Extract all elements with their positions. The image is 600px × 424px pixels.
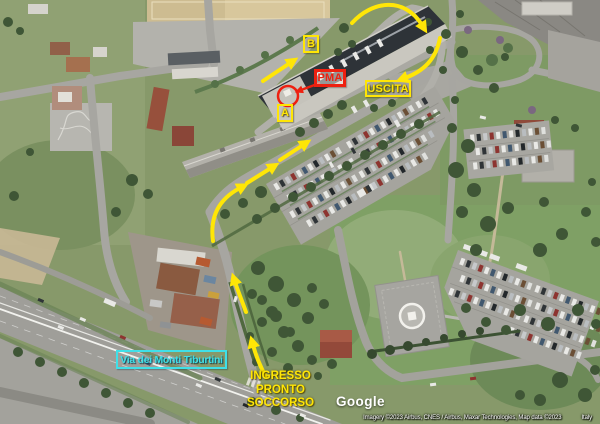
marker-a-label: A [281, 107, 289, 119]
attribution-bar: Imagery ©2023 Airbus, CNES / Airbus, Max… [0, 415, 600, 421]
imagery-credit: Imagery ©2023 Airbus, CNES / Airbus, Max… [363, 415, 561, 421]
entrance-label-line1: INGRESSO [250, 370, 311, 384]
uscita-label-text: USCITA [367, 83, 408, 95]
street-label-text: Via dei Monti Tiburtini [120, 354, 222, 366]
uscita-label: USCITA [365, 80, 411, 97]
google-watermark: Google [336, 394, 385, 409]
marker-a: A [277, 104, 293, 122]
google-logo-text: Google [336, 394, 385, 409]
region-label: Italy [581, 415, 592, 421]
street-label: Via dei Monti Tiburtini [116, 350, 227, 369]
satellite-imagery [0, 0, 600, 424]
pma-label-text: PMA [317, 72, 342, 84]
entrance-label-line3: SOCCORSO [247, 397, 314, 411]
entrance-label-line2: PRONTO [256, 384, 305, 398]
marker-b-label: B [307, 38, 315, 50]
pma-label: PMA [314, 69, 346, 87]
marker-b: B [303, 35, 319, 53]
entrance-label: INGRESSO PRONTO SOCCORSO [243, 370, 318, 411]
map-viewport[interactable]: B A PMA USCITA Via dei Monti Tiburtini I… [0, 0, 600, 424]
